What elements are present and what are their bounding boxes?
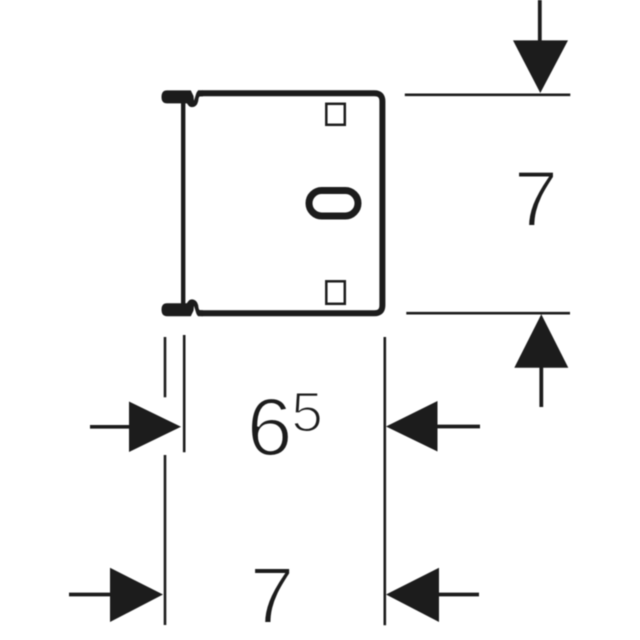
- svg-text:7: 7: [514, 154, 558, 243]
- svg-text:6: 6: [247, 382, 293, 473]
- svg-text:5: 5: [291, 381, 323, 445]
- svg-text:7: 7: [250, 551, 294, 640]
